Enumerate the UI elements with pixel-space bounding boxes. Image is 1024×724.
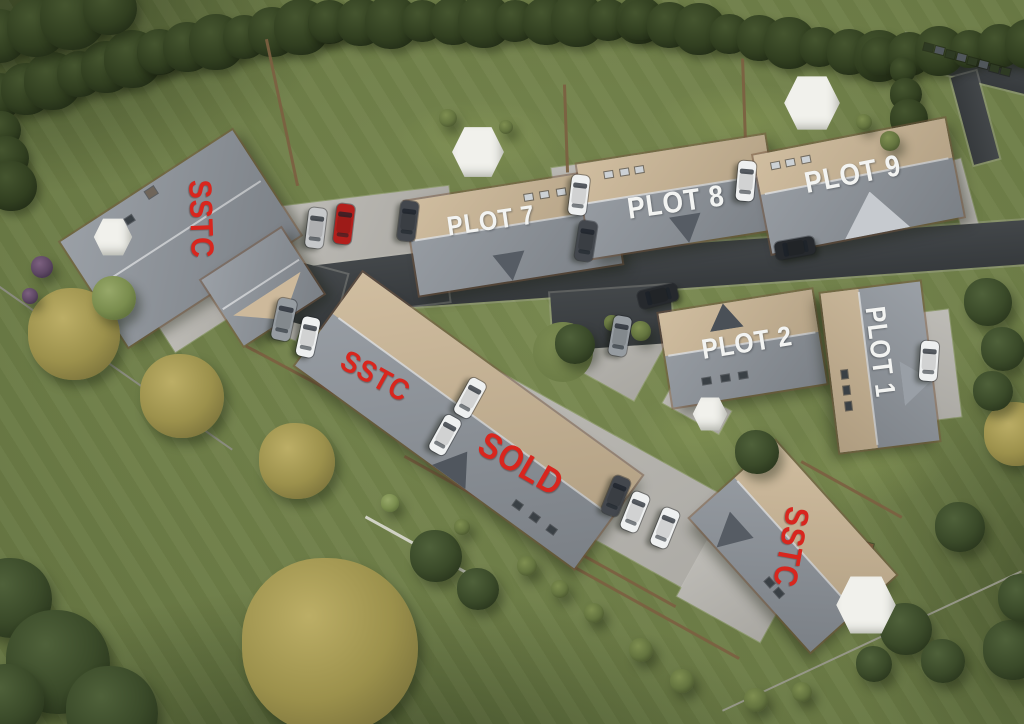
car-rear-window bbox=[922, 369, 935, 374]
tree bbox=[792, 682, 812, 702]
planter bbox=[978, 60, 988, 69]
car-white bbox=[919, 340, 940, 381]
planter bbox=[967, 57, 977, 66]
tree bbox=[410, 530, 462, 582]
planter bbox=[923, 43, 933, 52]
rooflight bbox=[605, 171, 614, 178]
rooflight bbox=[720, 374, 729, 381]
planter bbox=[945, 50, 955, 59]
flower-bush bbox=[22, 288, 38, 304]
tree bbox=[242, 558, 418, 724]
tree bbox=[935, 502, 985, 552]
car-roof bbox=[921, 352, 937, 371]
rooflight bbox=[843, 386, 850, 395]
car-white bbox=[735, 160, 756, 201]
tree bbox=[998, 574, 1024, 622]
tree bbox=[744, 688, 768, 712]
planter bbox=[989, 64, 999, 73]
rooflight bbox=[702, 377, 711, 384]
tree bbox=[629, 638, 653, 662]
tree bbox=[555, 324, 595, 364]
fence bbox=[265, 38, 299, 185]
tree bbox=[439, 109, 457, 127]
car-rear-window bbox=[336, 232, 349, 238]
car-rear-window bbox=[571, 203, 584, 209]
tree bbox=[984, 402, 1024, 466]
tree bbox=[457, 568, 499, 610]
tree bbox=[381, 494, 399, 512]
flower-bush bbox=[31, 256, 53, 278]
car-roof bbox=[738, 172, 754, 192]
tree bbox=[140, 354, 224, 438]
planter bbox=[934, 46, 944, 55]
rooflight bbox=[841, 370, 848, 379]
tree bbox=[631, 321, 651, 341]
planter bbox=[1000, 67, 1010, 76]
tree bbox=[517, 556, 537, 576]
hedge-bush bbox=[0, 161, 37, 211]
tree bbox=[670, 669, 694, 693]
tree bbox=[856, 114, 872, 130]
site-plan: SSTCPLOT 7PLOT 8PLOT 9PLOT 2PLOT 1SSTCSO… bbox=[0, 0, 1024, 724]
car-rear-window bbox=[400, 229, 413, 235]
rooflight bbox=[845, 402, 852, 411]
tree bbox=[856, 646, 892, 682]
tree bbox=[983, 620, 1024, 680]
car-windshield bbox=[923, 349, 937, 355]
rooflight bbox=[540, 191, 549, 198]
tree bbox=[584, 603, 604, 623]
car-rear-window bbox=[308, 236, 321, 242]
rooflight bbox=[635, 166, 644, 173]
planter bbox=[956, 53, 966, 62]
tree bbox=[964, 278, 1012, 326]
tree bbox=[973, 371, 1013, 411]
tree bbox=[735, 430, 779, 474]
rooflight bbox=[556, 188, 565, 195]
tree bbox=[259, 423, 335, 499]
car-rear-window bbox=[738, 189, 751, 194]
rooflight bbox=[739, 371, 748, 378]
tree bbox=[551, 580, 569, 598]
tree bbox=[454, 519, 470, 535]
tree bbox=[981, 327, 1024, 371]
sstc-west-label: SSTC bbox=[181, 179, 221, 259]
rooflight bbox=[620, 168, 629, 175]
tree bbox=[499, 120, 513, 134]
tree bbox=[921, 639, 965, 683]
tree bbox=[92, 276, 136, 320]
